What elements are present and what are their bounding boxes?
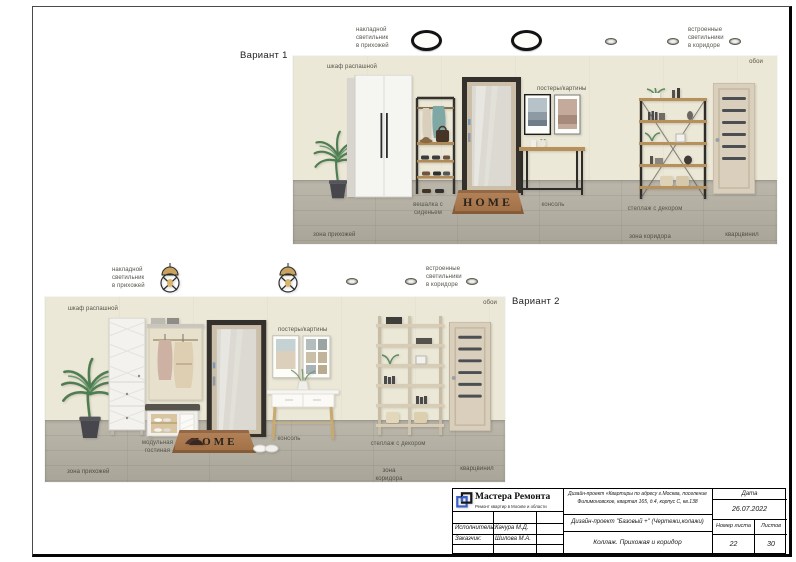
v1-corridor-zone-label: зона коридора bbox=[620, 234, 680, 242]
company-logo-icon bbox=[456, 492, 473, 509]
entrance-door-image bbox=[206, 320, 267, 437]
pendant-lamp-icon bbox=[158, 263, 182, 295]
variant1-title: Вариант 1 bbox=[240, 50, 288, 61]
design-sheet: накладной светильник в прихожей встроенн… bbox=[0, 0, 796, 562]
company-tagline: Ремонт квартир в Москве и области bbox=[475, 504, 547, 509]
v1-posters-label: постеры/картины bbox=[537, 86, 586, 94]
sheet-number-value: 22 bbox=[713, 541, 754, 548]
tb-divider bbox=[563, 514, 712, 515]
v2-surface-light-label: накладной светильник в прихожей bbox=[112, 267, 158, 290]
sheets-total-value: 30 bbox=[755, 541, 787, 548]
wardrobe-image bbox=[347, 75, 412, 200]
shelf-unit-image bbox=[638, 88, 708, 201]
sheet-number-label: Номер листа bbox=[713, 523, 754, 529]
project-address: Дизайн-проект «Квартиры по адресу г.Моск… bbox=[565, 491, 710, 506]
tb-divider bbox=[563, 489, 564, 555]
wall-rack-image bbox=[147, 318, 204, 404]
doormat-text: HOME bbox=[463, 195, 513, 210]
v1-console-label: консоль bbox=[533, 202, 573, 210]
v2-hall-zone-label: зона прихожей bbox=[67, 469, 109, 477]
executor-name: Качура М.Д. bbox=[495, 525, 528, 531]
sheet-name: Коллаж. Прихожая и коридор bbox=[565, 539, 710, 546]
v2-shelf-label: стеллаж с декором bbox=[370, 441, 426, 449]
client-name: Шилова М.А. bbox=[495, 536, 531, 542]
date-value: 26.07.2022 bbox=[712, 506, 787, 513]
ceiling-light-icon bbox=[511, 30, 542, 51]
v1-surface-light-label: накладной светильник в прихожей bbox=[356, 27, 402, 50]
console-image bbox=[519, 139, 585, 197]
recessed-light-icon bbox=[729, 38, 741, 45]
variant2-title: Вариант 2 bbox=[512, 296, 560, 307]
recessed-light-icon bbox=[466, 278, 478, 285]
client-label: Заказчик: bbox=[455, 536, 481, 542]
interior-door-image bbox=[713, 83, 755, 194]
tb-divider bbox=[453, 544, 563, 545]
ceiling-light-icon bbox=[411, 30, 442, 51]
tb-divider bbox=[453, 511, 563, 512]
variant1-collage: шкаф распашной обои bbox=[293, 56, 777, 244]
tb-divider bbox=[453, 534, 563, 535]
tb-divider bbox=[712, 534, 787, 535]
v1-floor-material-label: кварцвинил bbox=[720, 232, 764, 240]
variant2-collage: шкаф распашной обои bbox=[45, 297, 505, 482]
doormat: HOME bbox=[452, 190, 524, 214]
tb-divider bbox=[493, 511, 494, 555]
v2-posters-label: постеры/картины bbox=[278, 327, 327, 335]
title-block: Мастера Ремонта Ремонт квартир в Москве … bbox=[452, 488, 786, 554]
executor-label: Исполнитель: bbox=[455, 525, 495, 531]
v1-rack-label: вешалка с сиденьем bbox=[403, 202, 453, 218]
tall-cabinet-image bbox=[107, 318, 147, 436]
company-name: Мастера Ремонта bbox=[475, 492, 550, 502]
recessed-light-icon bbox=[346, 278, 358, 285]
sheets-total-label: Листов bbox=[755, 523, 787, 529]
console-desk-image bbox=[267, 368, 339, 441]
entrance-door-image bbox=[462, 77, 521, 193]
tb-divider bbox=[563, 531, 712, 532]
coat-rack-image bbox=[413, 88, 458, 196]
v1-hall-zone-label: зона прихожей bbox=[313, 232, 355, 240]
recessed-light-icon bbox=[667, 38, 679, 45]
v2-recessed-light-label: встроенные светильники в коридоре bbox=[426, 266, 470, 289]
sneakers-image bbox=[253, 441, 279, 453]
recessed-light-icon bbox=[605, 38, 617, 45]
shelf-unit-image bbox=[376, 316, 444, 437]
v1-wardrobe-label: шкаф распашной bbox=[327, 64, 377, 72]
v2-wardrobe-label: шкаф распашной bbox=[68, 306, 118, 314]
v1-shelf-label: стеллаж с декором bbox=[625, 206, 685, 214]
pendant-lamp-icon bbox=[276, 263, 300, 295]
date-label: Дата bbox=[712, 491, 787, 497]
tb-divider bbox=[712, 519, 787, 520]
posters-image bbox=[524, 94, 581, 135]
v2-floor-material-label: кварцвинил bbox=[460, 466, 494, 474]
tb-divider bbox=[712, 499, 787, 500]
heels-shoes-image bbox=[183, 434, 205, 446]
interior-door-image bbox=[449, 322, 491, 431]
tb-divider bbox=[536, 511, 537, 555]
v1-recessed-light-label: встроенные светильники в коридоре bbox=[688, 27, 732, 50]
v2-corridor-zone-label: зона коридора bbox=[369, 468, 409, 484]
recessed-light-icon bbox=[405, 278, 417, 285]
tb-divider bbox=[453, 523, 563, 524]
project-name: Дизайн-проект "Базовый +" (Чертежи,колаж… bbox=[565, 519, 710, 525]
v2-wallpaper-label: обои bbox=[483, 300, 497, 308]
v1-wallpaper-label: обои bbox=[749, 59, 763, 67]
